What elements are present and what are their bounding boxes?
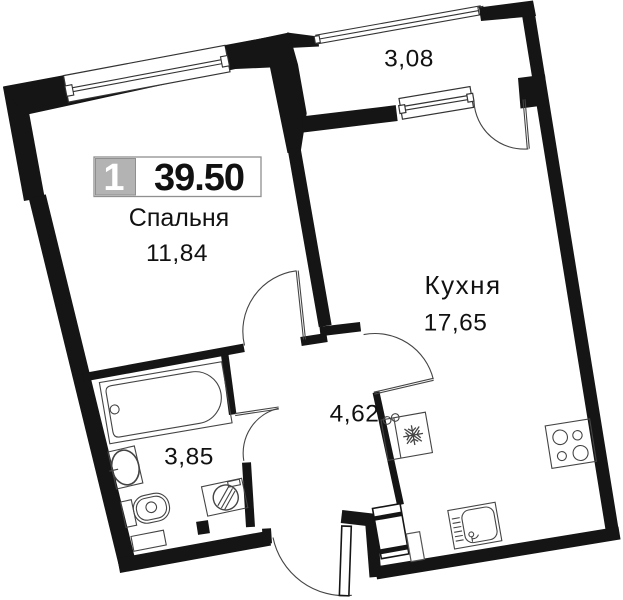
svg-text:4,62: 4,62 [330,401,380,428]
svg-text:Спальня: Спальня [129,204,229,232]
svg-text:17,65: 17,65 [424,310,488,337]
svg-text:Кухня: Кухня [424,270,501,300]
svg-text:3,85: 3,85 [164,444,214,471]
svg-text:3,08: 3,08 [384,46,434,73]
svg-text:1: 1 [103,157,124,199]
svg-text:39.50: 39.50 [154,157,244,199]
svg-text:11,84: 11,84 [146,240,208,267]
